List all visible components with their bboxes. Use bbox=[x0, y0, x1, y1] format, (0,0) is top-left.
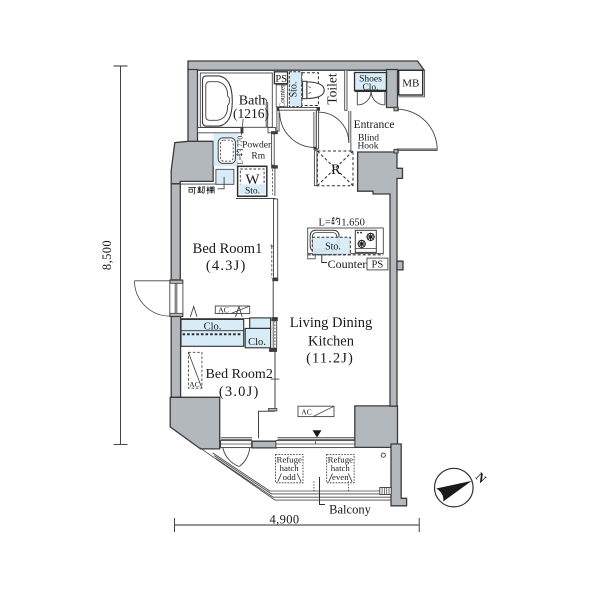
svg-text:Counter: Counter bbox=[328, 257, 367, 271]
svg-text:Kitchen: Kitchen bbox=[308, 334, 355, 350]
svg-text:(11.2J): (11.2J) bbox=[306, 351, 354, 367]
svg-text:Sto.: Sto. bbox=[325, 242, 341, 253]
svg-text:AC: AC bbox=[218, 306, 228, 315]
svg-text:Clo.: Clo. bbox=[248, 337, 266, 348]
svg-text:Toilet: Toilet bbox=[325, 73, 340, 105]
svg-text:1.650: 1.650 bbox=[341, 218, 365, 229]
svg-text:4,900: 4,900 bbox=[269, 513, 299, 527]
svg-text:even: even bbox=[332, 472, 349, 482]
svg-text:(1216): (1216) bbox=[233, 106, 269, 121]
svg-text:odd: odd bbox=[283, 472, 297, 482]
svg-text:Powder: Powder bbox=[242, 141, 272, 151]
svg-text:L=: L= bbox=[319, 218, 331, 229]
svg-text:AC: AC bbox=[301, 408, 311, 417]
svg-text:MB: MB bbox=[402, 78, 419, 90]
svg-text:Clo.: Clo. bbox=[204, 321, 222, 332]
svg-text:Sto.: Sto. bbox=[289, 82, 300, 98]
svg-text:Living Dining: Living Dining bbox=[290, 315, 373, 331]
svg-text:R: R bbox=[331, 162, 341, 178]
svg-text:Balcony: Balcony bbox=[329, 503, 371, 517]
svg-text:Bed Room1: Bed Room1 bbox=[193, 241, 263, 257]
svg-text:(3.0J): (3.0J) bbox=[219, 384, 260, 400]
svg-text:8,500: 8,500 bbox=[100, 240, 114, 270]
svg-text:Sto.: Sto. bbox=[245, 187, 260, 197]
svg-text:(4.3J): (4.3J) bbox=[206, 258, 247, 274]
svg-text:PS: PS bbox=[275, 74, 287, 85]
svg-text:Hook: Hook bbox=[357, 142, 378, 152]
svg-text:AC: AC bbox=[189, 380, 199, 389]
svg-text:Counter: Counter bbox=[279, 84, 287, 108]
svg-text:Entrance: Entrance bbox=[354, 119, 395, 131]
svg-text:L=: L= bbox=[235, 156, 244, 165]
svg-text:Bed Room2: Bed Room2 bbox=[206, 367, 273, 382]
svg-text:PS: PS bbox=[372, 260, 384, 271]
svg-text:Rm: Rm bbox=[251, 152, 265, 162]
